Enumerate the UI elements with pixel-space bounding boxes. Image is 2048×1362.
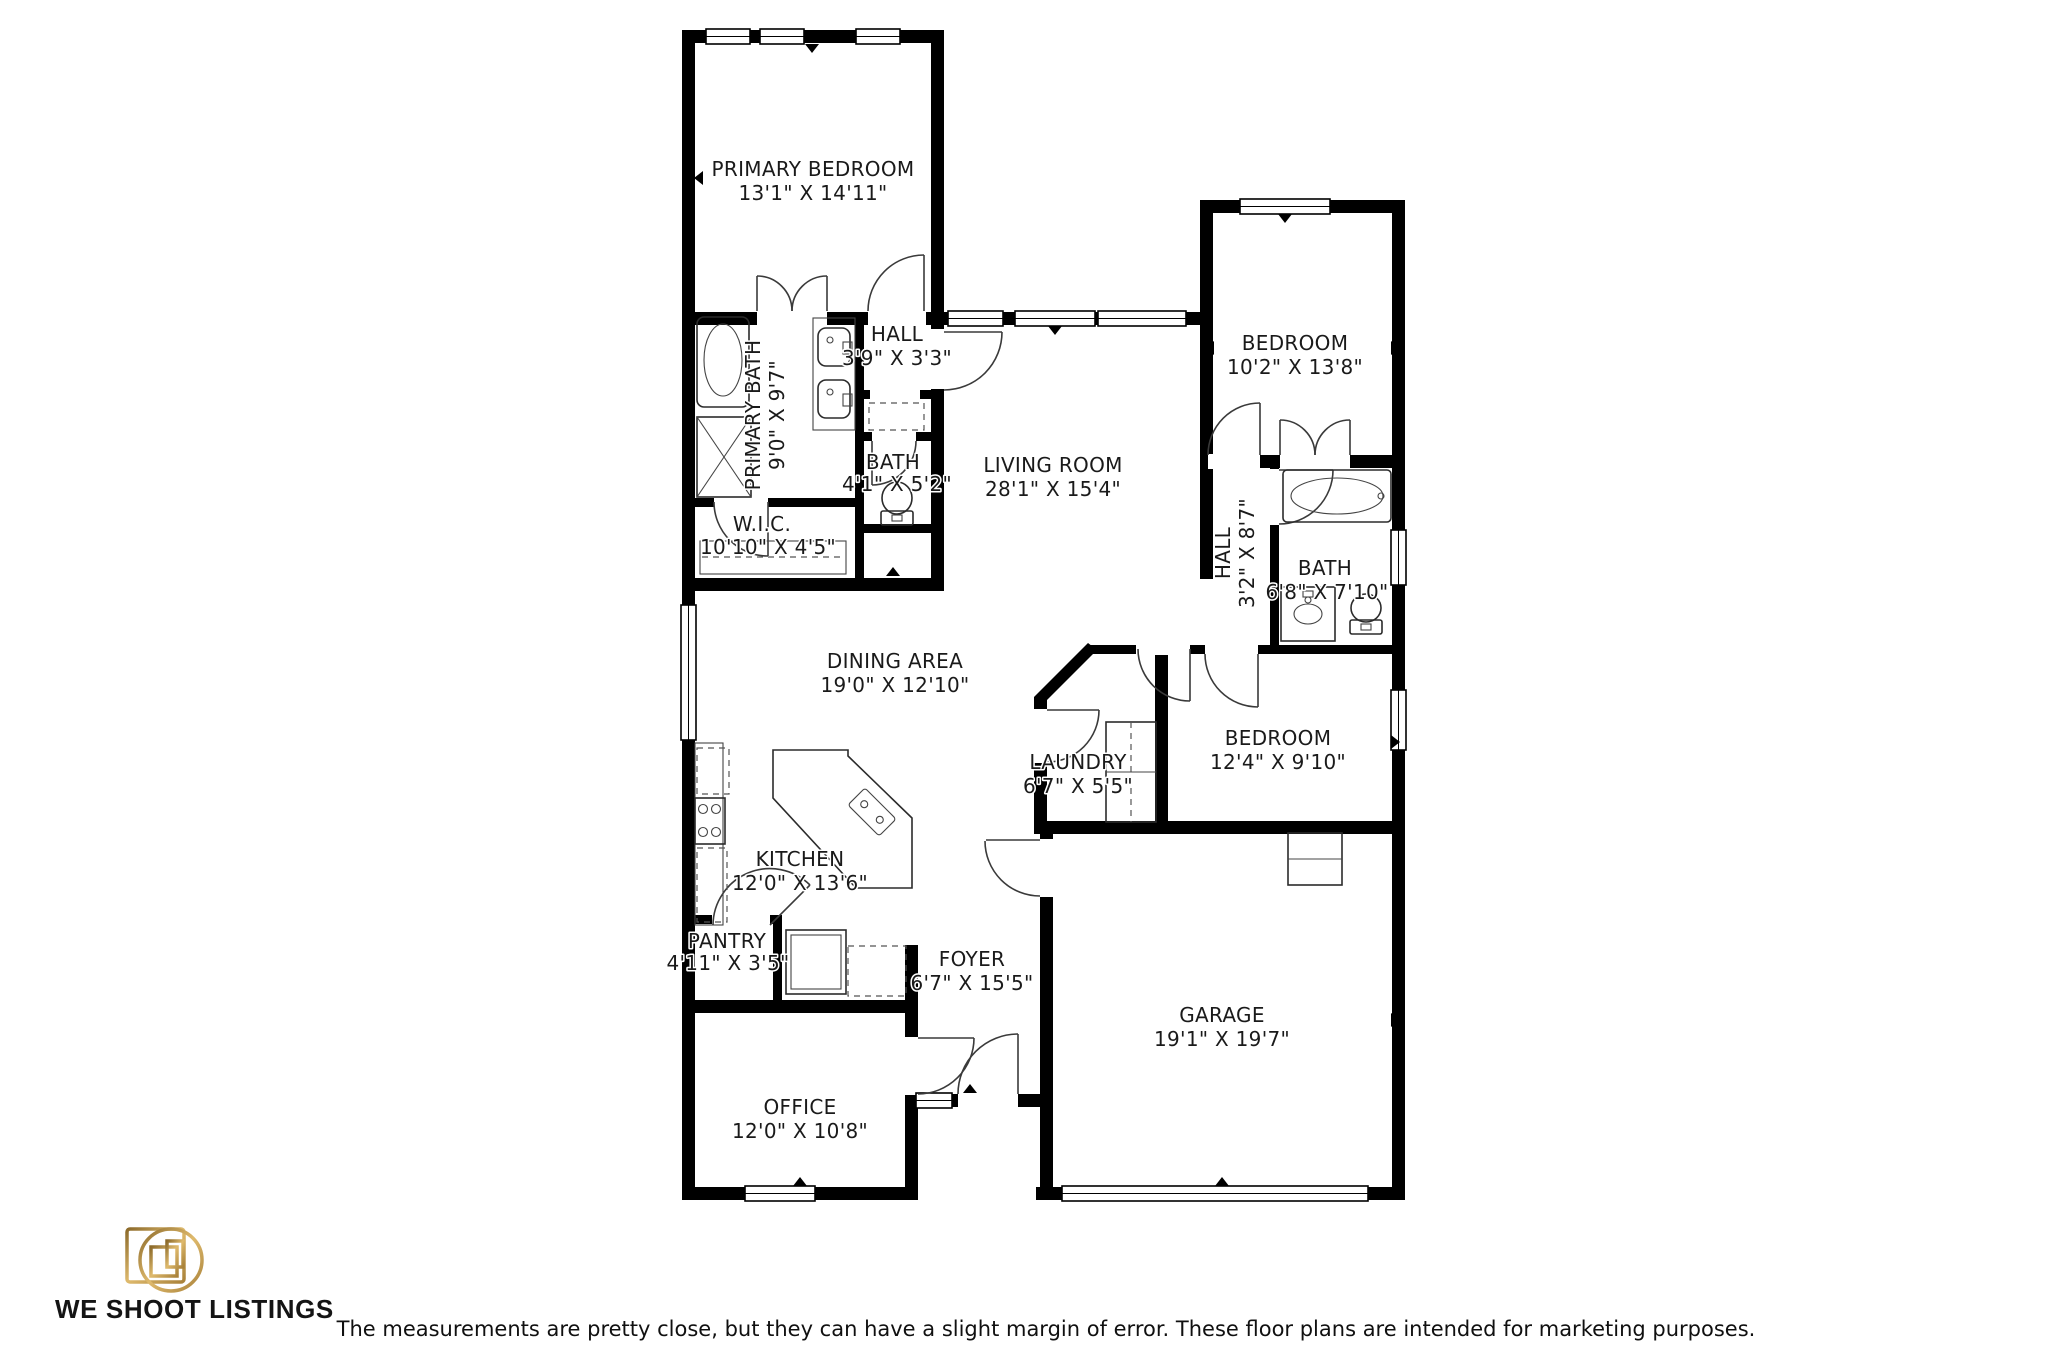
room-dims-hall-right: 3'2" X 8'7" [1235,498,1259,608]
bathtub-icon [1283,470,1391,522]
fridge-icon [786,930,846,994]
room-label-foyer: FOYER [939,947,1005,971]
room-dims-living-room: 28'1" X 15'4" [985,477,1121,501]
room-dims-bath-small: 4'1" X 5'2" [842,472,952,496]
room-dims-bath-right: 6'8" X 7'10" [1265,580,1388,604]
room-dims-office: 12'0" X 10'8" [732,1119,868,1143]
window-icon [948,311,1003,326]
room-dims-kitchen: 12'0" X 13'6" [732,871,868,895]
company-name: WE SHOOT LISTINGS [55,1294,334,1324]
room-label-bath-right: BATH [1298,556,1352,580]
room-dims-dining-area: 19'0" X 12'10" [820,673,969,697]
floorplan-page: PRIMARY BEDROOM 13'1" X 14'11" HALL 3'9"… [0,0,2048,1362]
room-dims-wic: 10'10" X 4'5" [700,535,836,559]
linen-cabinet-icon [869,403,924,430]
closet-double-door-icon [1280,420,1350,455]
window-icon [1240,199,1330,214]
room-dims-laundry: 6'7" X 5'5" [1023,774,1133,798]
window-icon [856,29,900,44]
floor-plan: PRIMARY BEDROOM 13'1" X 14'11" HALL 3'9"… [0,0,2048,1362]
room-dims-pantry: 4'11" X 3'5" [666,951,789,975]
camera-inner-frame-small [167,1241,183,1267]
door-icon [1208,403,1260,455]
room-label-kitchen: KITCHEN [756,847,845,871]
room-label-laundry: LAUNDRY [1029,750,1127,774]
door-icon [985,840,1040,896]
doors [713,255,1350,1094]
room-label-living-room: LIVING ROOM [983,453,1122,477]
room-label-primary-bath: PRIMARY BATH [741,340,765,491]
room-label-bedroom-right: BEDROOM [1225,726,1332,750]
room-dims-bedroom-upper: 10'2" X 13'8" [1227,355,1363,379]
room-label-hall-upper: HALL [871,322,924,346]
window-icon [1015,311,1095,326]
room-label-primary-bedroom: PRIMARY BEDROOM [712,157,915,181]
water-heater-icon [1288,833,1342,885]
room-label-bath-small: BATH [866,450,920,474]
disclaimer-text: The measurements are pretty close, but t… [336,1317,1756,1341]
room-label-pantry: PANTRY [688,929,767,953]
counter-icon [848,946,906,996]
room-dims-foyer: 6'7" X 15'5" [910,971,1033,995]
window-icon [706,29,750,44]
room-label-hall-right: HALL [1211,526,1235,579]
window-icon [1391,530,1406,585]
room-dims-bedroom-right: 12'4" X 9'10" [1210,750,1346,774]
garage-door [1062,1186,1368,1201]
vanity-sink-icon [813,318,855,430]
window-icon [745,1186,815,1201]
room-dims-primary-bath: 9'0" X 9'7" [765,360,789,470]
stove-icon [695,798,725,844]
company-logo: WE SHOOT LISTINGS [55,1222,334,1324]
window-icon [760,29,804,44]
camera-icon [127,1222,202,1291]
room-dims-hall-upper: 3'9" X 3'3" [842,346,952,370]
window-icon [681,605,696,740]
camera-inner-frame [151,1247,177,1276]
window-icon [916,1093,952,1108]
room-dims-primary-bedroom: 13'1" X 14'11" [738,181,887,205]
room-label-dining-area: DINING AREA [827,649,963,673]
double-door-icon [757,276,827,311]
room-label-bedroom-upper: BEDROOM [1242,331,1349,355]
room-label-garage: GARAGE [1179,1003,1265,1027]
door-icon [944,332,1002,390]
window-icon [1098,311,1186,326]
room-label-office: OFFICE [763,1095,836,1119]
room-dims-garage: 19'1" X 19'7" [1154,1027,1290,1051]
door-icon [1205,654,1258,707]
room-label-wic: W.I.C. [733,512,791,536]
door-icon [868,255,924,311]
